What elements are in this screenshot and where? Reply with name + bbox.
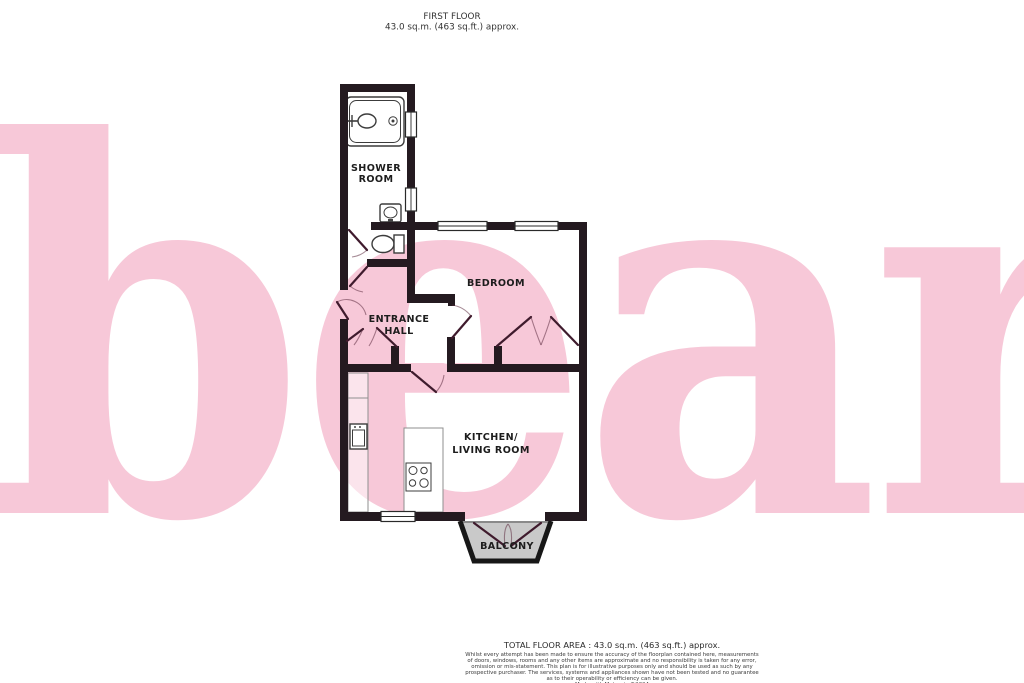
floorplan-page: bear FIRST FLOOR 43.0 sq.m. (463 sq.ft.)… xyxy=(0,0,1024,683)
label-kitchen-living: KITCHEN/ xyxy=(464,432,518,443)
wall xyxy=(371,222,407,230)
total-floor-area: TOTAL FLOOR AREA : 43.0 sq.m. (463 sq.ft… xyxy=(503,640,720,650)
label-entrance-hall: ENTRANCE xyxy=(369,314,430,325)
toilet-bowl xyxy=(372,236,394,253)
plan-footer: TOTAL FLOOR AREA : 43.0 sq.m. (463 sq.ft… xyxy=(465,640,759,683)
label-bedroom: BEDROOM xyxy=(467,278,525,289)
shower-head-icon xyxy=(358,114,376,128)
kitchen-island xyxy=(404,428,443,512)
wall xyxy=(340,84,415,92)
toilet-cistern xyxy=(394,235,404,253)
label-entrance-hall: HALL xyxy=(384,326,413,337)
floorplan-drawing: bear FIRST FLOOR 43.0 sq.m. (463 sq.ft.)… xyxy=(0,0,1024,683)
floor-title: FIRST FLOOR xyxy=(423,12,480,22)
wall xyxy=(340,319,348,521)
wall xyxy=(415,512,465,521)
wall xyxy=(391,346,399,364)
wall xyxy=(340,84,348,290)
label-shower-room: ROOM xyxy=(359,174,394,185)
wall xyxy=(340,364,411,372)
wall xyxy=(407,222,587,230)
wall xyxy=(447,364,587,372)
label-shower-room: SHOWER xyxy=(351,163,401,174)
wall xyxy=(447,337,455,364)
wall xyxy=(448,294,455,306)
floor-area: 43.0 sq.m. (463 sq.ft.) approx. xyxy=(385,23,519,33)
shower-fixtures xyxy=(346,97,404,146)
wall xyxy=(367,259,415,267)
wall xyxy=(407,294,450,303)
appliance-knob xyxy=(354,426,356,428)
wall xyxy=(494,346,502,364)
wall xyxy=(545,512,587,521)
appliance-knob xyxy=(359,426,361,428)
plan-header: FIRST FLOOR 43.0 sq.m. (463 sq.ft.) appr… xyxy=(385,12,519,33)
label-kitchen-living: LIVING ROOM xyxy=(452,445,530,456)
shower-control-dot xyxy=(392,120,395,123)
wall xyxy=(340,512,381,521)
label-balcony: BALCONY xyxy=(480,541,534,552)
